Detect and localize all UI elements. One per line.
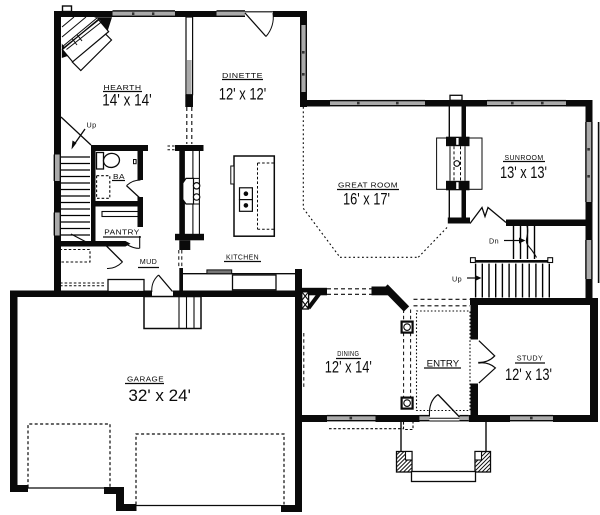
svg-text:PANTRY: PANTRY (104, 228, 140, 237)
svg-text:KITCHEN: KITCHEN (226, 253, 259, 262)
svg-text:Up: Up (87, 121, 97, 130)
svg-text:32' x 24': 32' x 24' (128, 386, 191, 405)
svg-text:12' x 13': 12' x 13' (505, 365, 552, 384)
svg-text:13' x 13': 13' x 13' (500, 163, 547, 182)
svg-text:BA: BA (113, 172, 125, 181)
svg-text:GARAGE: GARAGE (127, 375, 164, 384)
svg-text:16' x 17': 16' x 17' (343, 190, 390, 209)
svg-text:DINETTE: DINETTE (222, 71, 263, 80)
svg-text:12' x 14': 12' x 14' (325, 358, 372, 377)
svg-text:Up: Up (452, 275, 462, 284)
svg-text:SUNROOM: SUNROOM (505, 153, 544, 162)
svg-text:12' x 12': 12' x 12' (219, 85, 267, 104)
svg-text:STUDY: STUDY (517, 353, 544, 362)
svg-text:MUD: MUD (140, 257, 158, 266)
svg-text:Dn: Dn (489, 237, 499, 246)
svg-text:GREAT ROOM: GREAT ROOM (338, 180, 398, 189)
svg-text:14' x 14': 14' x 14' (102, 91, 152, 110)
